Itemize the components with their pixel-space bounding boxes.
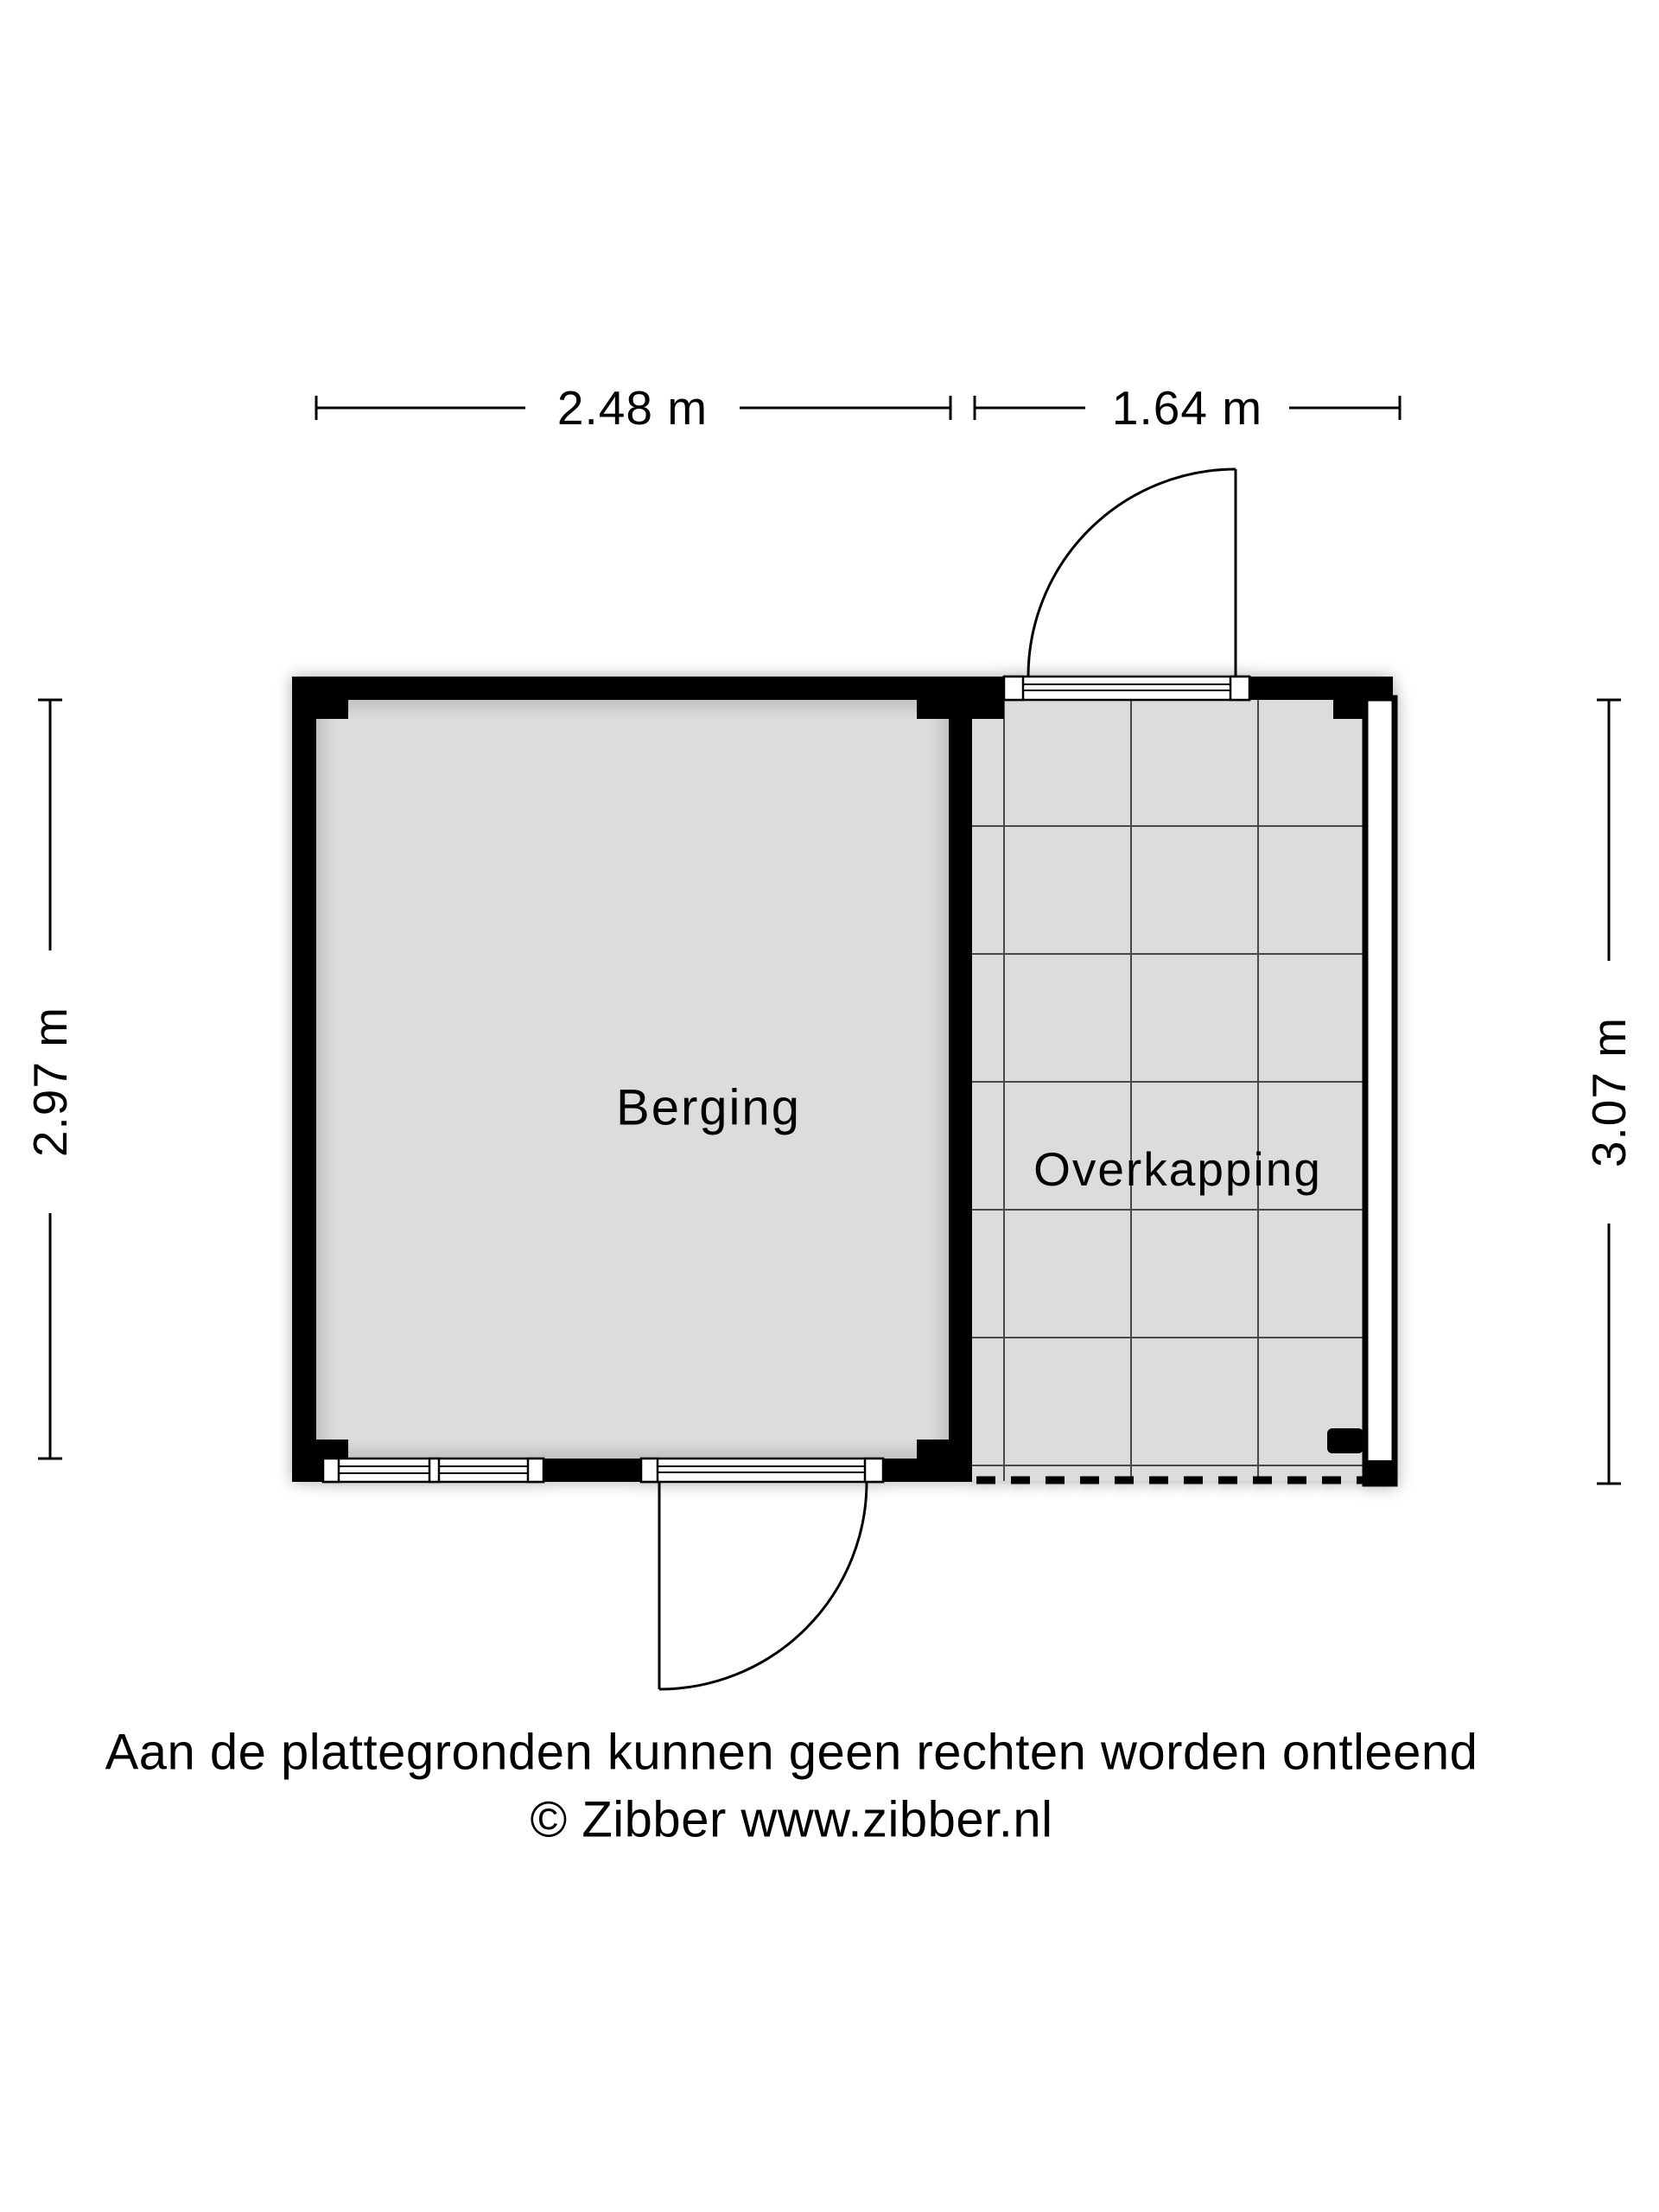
corner-post <box>316 700 348 719</box>
dimension-label-top-left: 2.48 m <box>557 381 708 435</box>
room-label-overkapping: Overkapping <box>1033 1142 1322 1196</box>
plan-body <box>292 677 1395 1484</box>
door-sill <box>641 1459 883 1482</box>
top-door-opening <box>1004 677 1249 700</box>
footer-disclaimer: Aan de plattegronden kunnen geen rechten… <box>105 1725 1478 1781</box>
floorplan-drawing: 2.48 m 1.64 m 2.97 m 3.07 m Berging Over… <box>0 0 1659 2212</box>
glass-wall-bottom-cap <box>1365 1460 1395 1484</box>
corner-post <box>917 700 949 719</box>
dimension-label-left: 2.97 m <box>23 1007 77 1157</box>
dimension-label-top-right: 1.64 m <box>1112 381 1262 435</box>
door-post <box>1230 677 1249 700</box>
window-post <box>429 1459 439 1482</box>
wall-segment-bottom-left-corner <box>292 1459 323 1482</box>
corner-post <box>917 1440 949 1459</box>
wall-segment-berging-right <box>949 677 972 1482</box>
window-band <box>323 1459 543 1482</box>
bottom-door-opening <box>641 1459 883 1482</box>
door-post <box>1004 677 1023 700</box>
wall-segment-left <box>292 677 316 1482</box>
door-post <box>865 1459 883 1482</box>
glass-wall-right <box>1365 698 1395 1484</box>
overkapping-floor <box>972 700 1365 1481</box>
corner-post <box>1333 700 1365 719</box>
support-post <box>1327 1428 1363 1453</box>
door-post <box>641 1459 658 1482</box>
window-post <box>528 1459 543 1482</box>
floorplan-page: 2.48 m 1.64 m 2.97 m 3.07 m Berging Over… <box>0 0 1659 2212</box>
wall-segment-top-berging <box>292 677 1004 700</box>
window-post <box>323 1459 339 1482</box>
footer-copyright: © Zibber www.zibber.nl <box>531 1792 1053 1848</box>
door-sill <box>1004 677 1249 700</box>
wall-segment-bottom-middle <box>543 1459 641 1482</box>
room-label-berging: Berging <box>616 1080 801 1136</box>
wall-segment-bottom-right <box>883 1459 972 1482</box>
corner-post <box>316 1440 348 1459</box>
corner-post <box>972 700 1004 719</box>
dimension-label-right: 3.07 m <box>1582 1017 1636 1167</box>
